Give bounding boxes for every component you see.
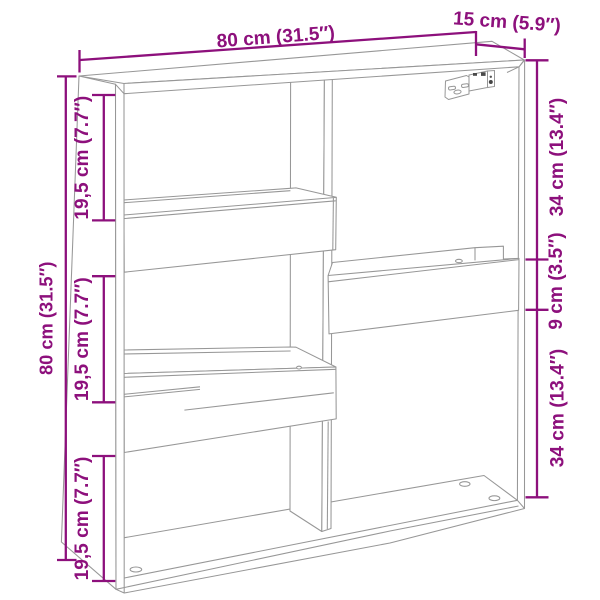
svg-text:19,5 cm (7.7″): 19,5 cm (7.7″) — [72, 96, 93, 220]
svg-text:34 cm (13.4″): 34 cm (13.4″) — [548, 349, 569, 467]
svg-text:19,5 cm (7.7″): 19,5 cm (7.7″) — [72, 277, 93, 401]
svg-text:34 cm (13.4″): 34 cm (13.4″) — [547, 98, 568, 216]
svg-text:80 cm (31.5″): 80 cm (31.5″) — [36, 262, 57, 375]
svg-text:80 cm (31.5″): 80 cm (31.5″) — [216, 23, 336, 53]
svg-text:9 cm (3.5″): 9 cm (3.5″) — [546, 232, 567, 329]
svg-text:19,5 cm (7.7″): 19,5 cm (7.7″) — [72, 457, 93, 581]
